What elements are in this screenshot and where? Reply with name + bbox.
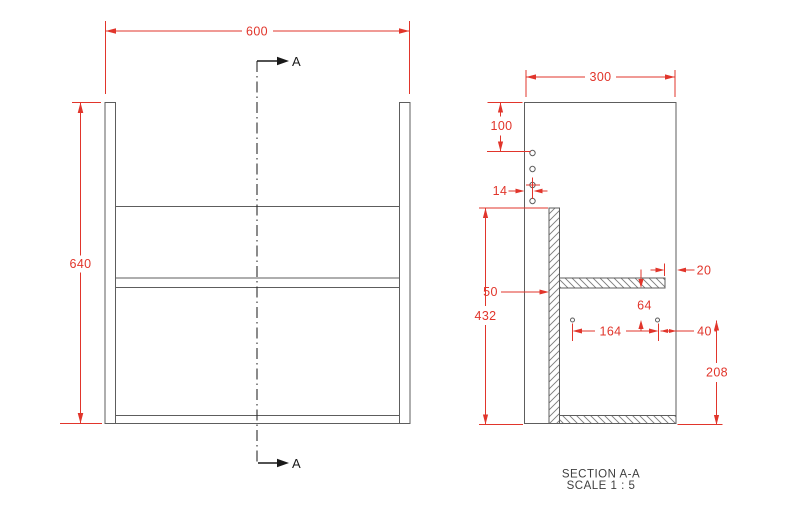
dim-hole-spacing-value: 164 bbox=[599, 325, 621, 339]
dim-front-height-value: 640 bbox=[69, 257, 91, 271]
shelf-pin-hole-2 bbox=[530, 166, 535, 171]
cad-drawing-sheet: A A 600 640 bbox=[0, 0, 800, 513]
shelf-pin-hole-1 bbox=[530, 150, 535, 155]
section-marker-bottom-label: A bbox=[292, 456, 301, 471]
dim-section-depth-value: 300 bbox=[589, 70, 611, 84]
section-bottom-panel bbox=[560, 416, 677, 424]
dim-front-width-value: 600 bbox=[246, 25, 268, 39]
dim-back-panel-height-value: 432 bbox=[474, 309, 496, 323]
view-title-block: SECTION A-A SCALE 1 : 5 bbox=[562, 469, 640, 493]
dim-hole-front-offset-value: 14 bbox=[493, 184, 508, 198]
dim-top-to-first-hole-value: 100 bbox=[490, 119, 512, 133]
dim-back-panel-inset-value: 50 bbox=[483, 285, 498, 299]
front-left-panel bbox=[105, 103, 116, 424]
mounting-hole-right bbox=[656, 318, 660, 322]
section-back-panel bbox=[549, 208, 560, 424]
dim-shelf-to-holes-value: 64 bbox=[637, 299, 652, 313]
shelf-pin-hole-4 bbox=[530, 198, 535, 203]
dim-holes-to-bottom-value: 208 bbox=[706, 366, 728, 380]
section-marker-top-label: A bbox=[292, 54, 301, 69]
view-scale: SCALE 1 : 5 bbox=[567, 480, 636, 492]
dim-shelf-setback-value: 20 bbox=[697, 264, 712, 278]
section-shelf bbox=[560, 278, 666, 288]
dim-hole-to-front-value: 40 bbox=[697, 325, 712, 339]
drawing-canvas: A A 600 640 bbox=[0, 0, 800, 513]
front-right-panel bbox=[400, 103, 411, 424]
mounting-hole-left bbox=[571, 318, 575, 322]
section-side-panel-outline bbox=[525, 103, 677, 424]
view-title: SECTION A-A bbox=[562, 469, 640, 481]
